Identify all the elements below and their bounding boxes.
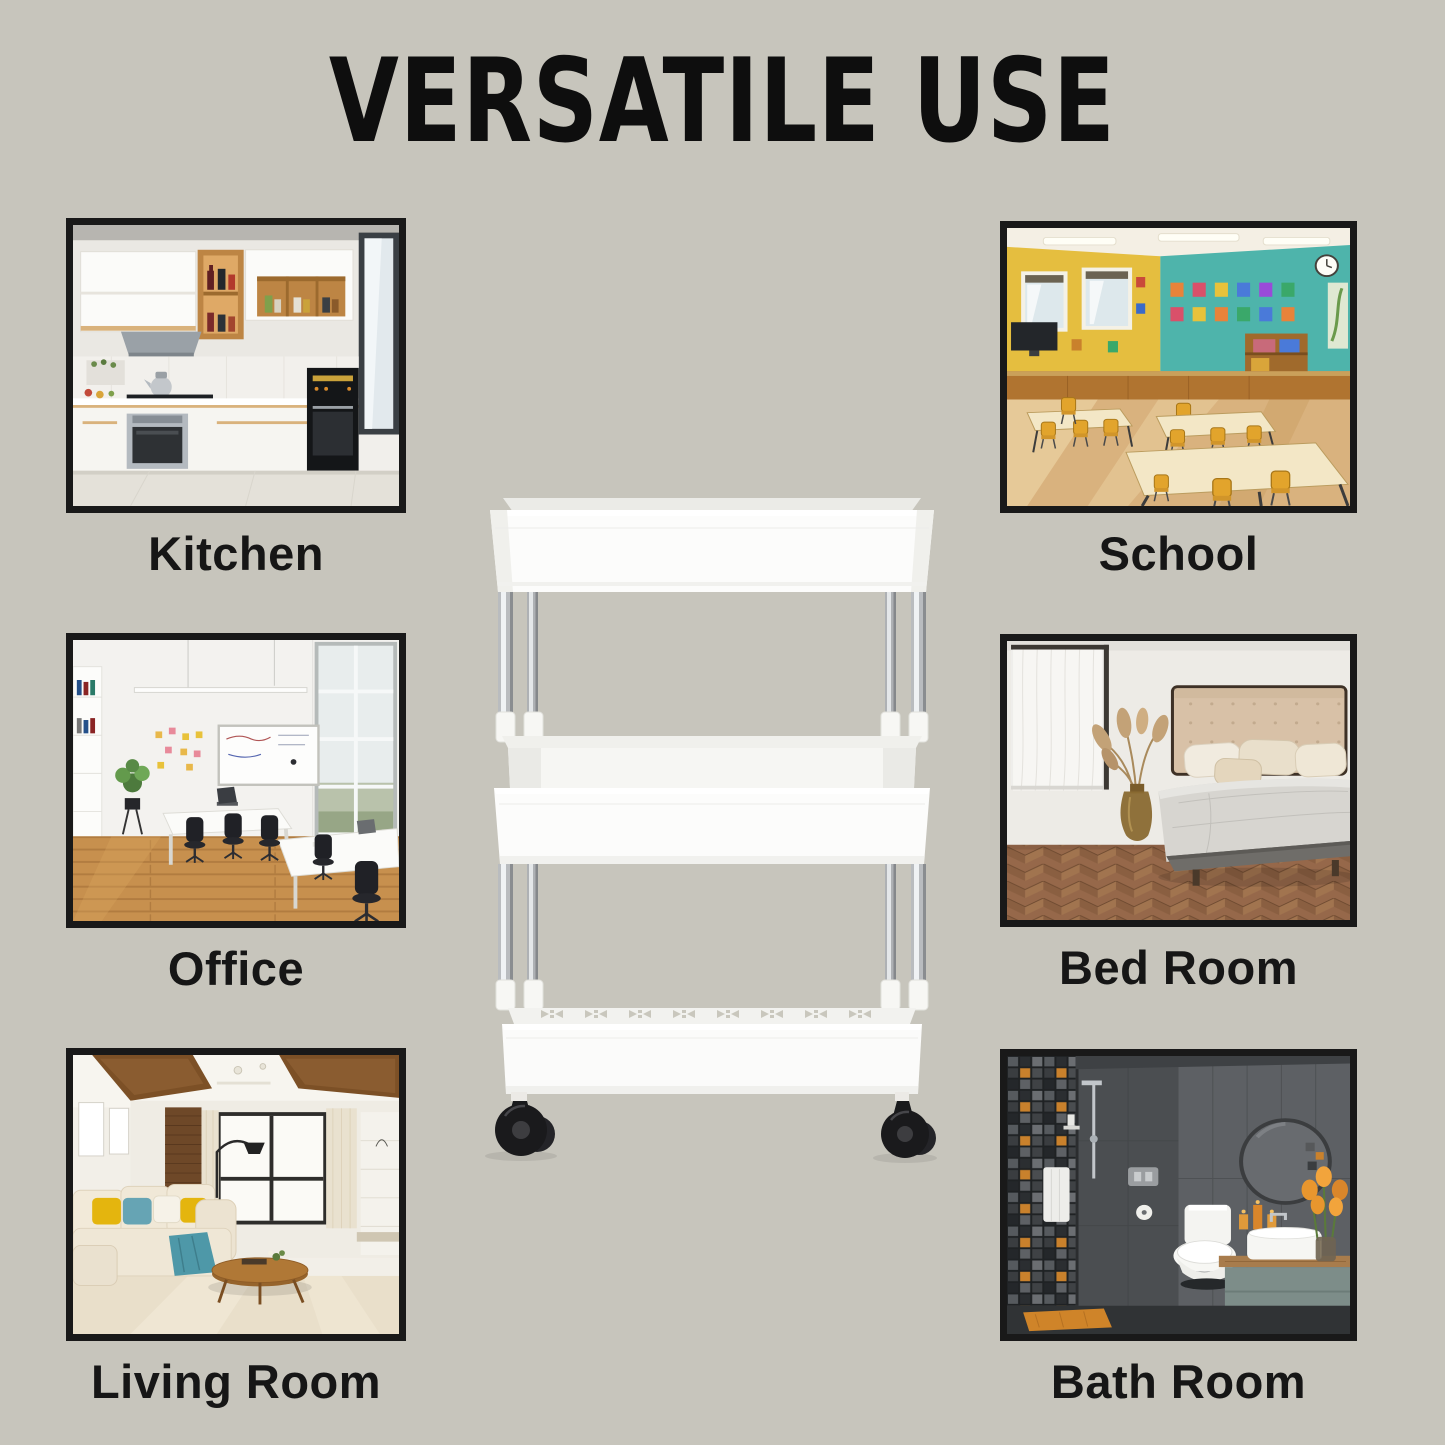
tile-kitchen: Kitchen	[66, 218, 406, 581]
page-title: VERSATILE USE	[0, 44, 1445, 160]
tile-label-bathroom: Bath Room	[1000, 1354, 1357, 1409]
three-tier-rolling-storage-cart	[481, 496, 943, 1164]
kitchen-photo-frame	[66, 218, 406, 513]
middle-tray	[494, 736, 930, 864]
tile-label-office: Office	[66, 941, 406, 996]
tile-living-room: Living Room	[66, 1048, 406, 1409]
bedroom-photo-frame	[1000, 634, 1357, 927]
black-oven	[307, 368, 359, 471]
school-photo-frame	[1000, 221, 1357, 513]
tile-label-living-room: Living Room	[66, 1354, 406, 1409]
tile-bathroom: Bath Room	[1000, 1049, 1357, 1409]
office-photo	[73, 640, 399, 921]
living-room-ceiling	[73, 1055, 399, 1107]
round-mirror	[1239, 1118, 1332, 1205]
towel	[1043, 1167, 1069, 1222]
bottom-tray	[502, 1008, 922, 1094]
left-caster-wheel	[495, 1092, 555, 1156]
office-photo-frame	[66, 633, 406, 928]
bedroom-photo	[1007, 641, 1350, 920]
bathroom-photo-frame	[1000, 1049, 1357, 1341]
school-yellow-wall	[1007, 247, 1160, 390]
sofa	[73, 1185, 236, 1286]
tile-school: School	[1000, 221, 1357, 581]
whiteboard	[219, 726, 319, 785]
product-image	[481, 496, 943, 1164]
toilet-paper-holder	[1136, 1205, 1152, 1220]
office-shelf	[73, 667, 102, 842]
tile-label-kitchen: Kitchen	[66, 526, 406, 581]
tile-office: Office	[66, 633, 406, 996]
range-hood	[121, 332, 202, 355]
living-room-photo-frame	[66, 1048, 406, 1341]
steel-oven	[127, 414, 188, 469]
wall-canvases	[79, 1103, 129, 1156]
tile-bedroom: Bed Room	[1000, 634, 1357, 995]
kitchen-photo	[73, 225, 399, 506]
right-caster-wheel	[881, 1092, 936, 1158]
kitchen-window	[359, 233, 399, 435]
chrome-poles-upper	[496, 592, 928, 742]
tile-label-bedroom: Bed Room	[1000, 940, 1357, 995]
chrome-poles-lower	[496, 864, 928, 1010]
school-photo	[1007, 228, 1350, 506]
living-room-builtins	[357, 1112, 399, 1255]
page-title-text: VERSATILE USE	[329, 44, 1116, 160]
top-tray	[490, 498, 934, 592]
product-infographic-page: { "page": { "title": "VERSATILE USE" }, …	[0, 0, 1445, 1445]
flush-plate	[1128, 1167, 1158, 1186]
school-teal-wall	[1160, 245, 1350, 375]
tile-label-school: School	[1000, 526, 1357, 581]
bedroom-window	[1011, 645, 1109, 791]
living-room-photo	[73, 1055, 399, 1334]
bathroom-photo	[1007, 1056, 1350, 1334]
